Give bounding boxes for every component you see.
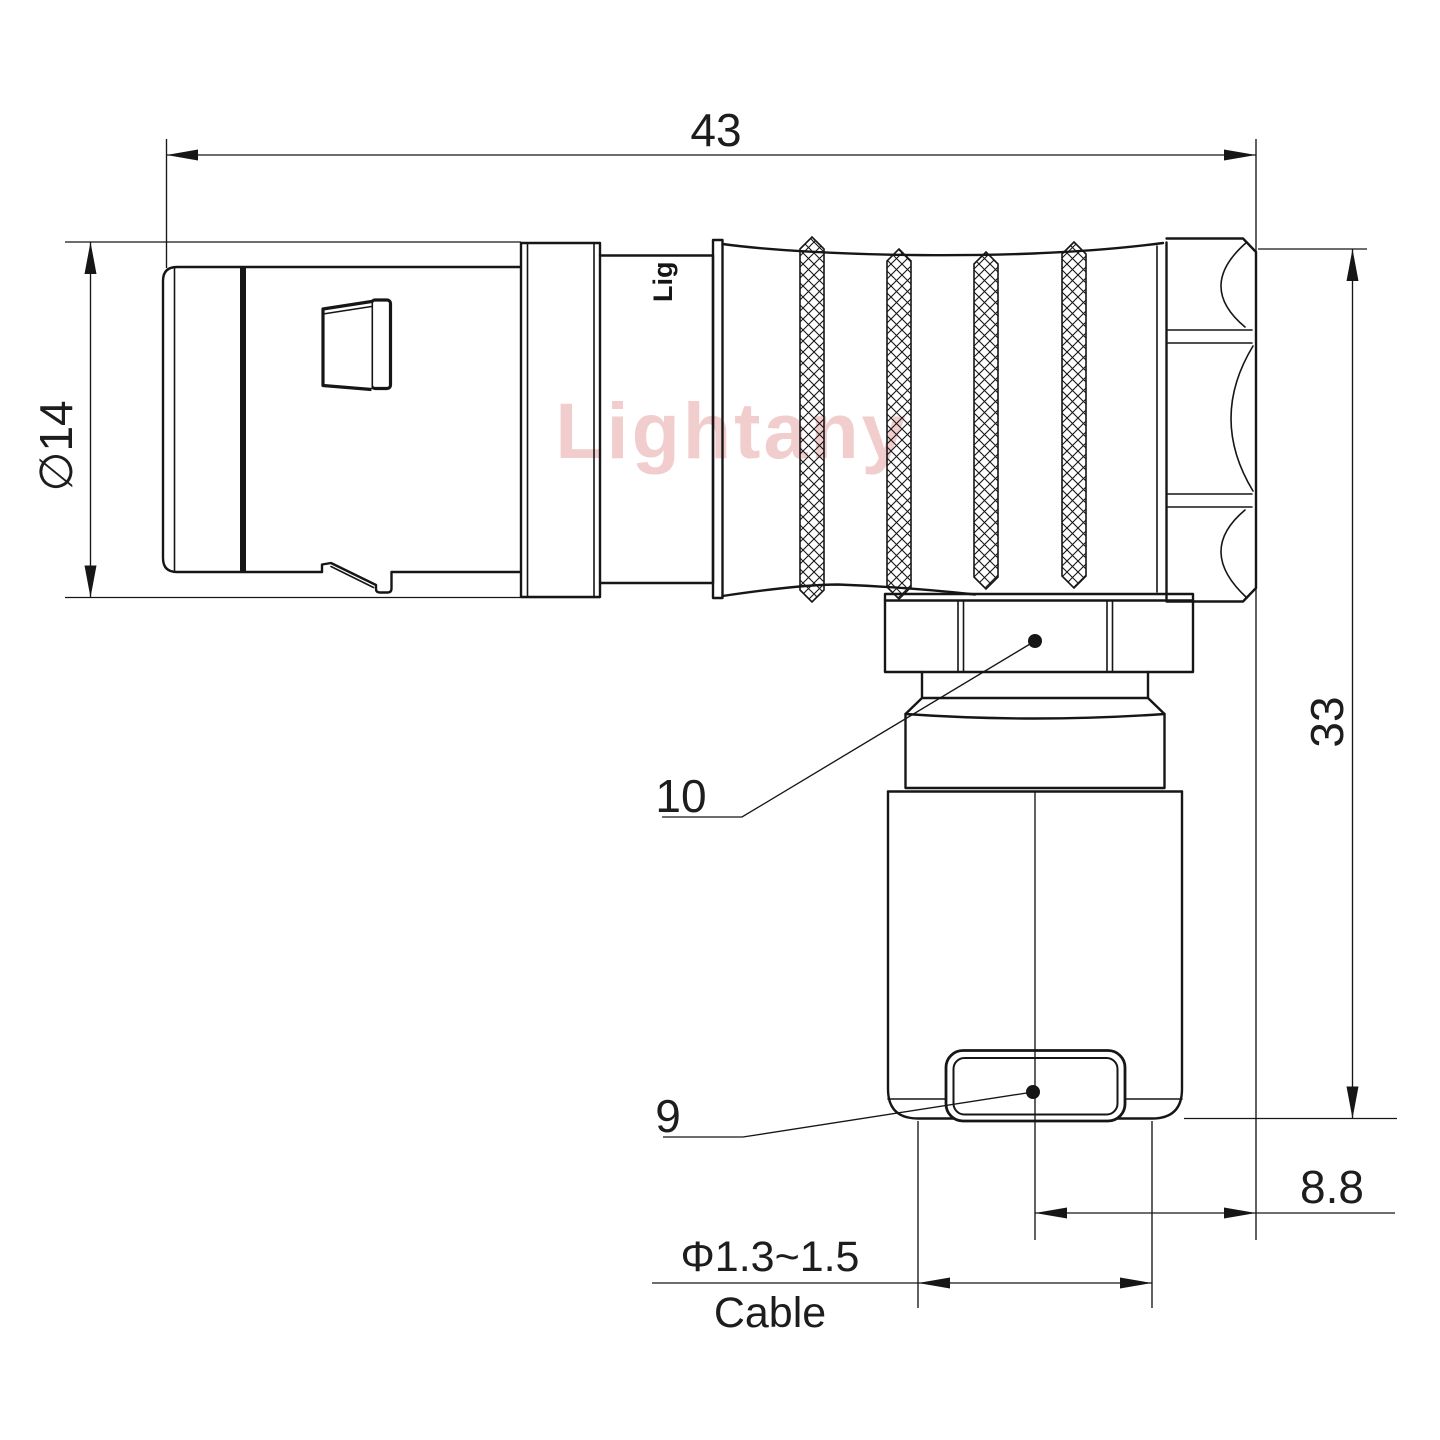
dim-cable-word-label: Cable bbox=[714, 1289, 826, 1337]
rear-cylinder bbox=[906, 714, 1165, 788]
connector-rear-body bbox=[885, 594, 1193, 1240]
latch-window bbox=[323, 300, 391, 390]
gland-nut bbox=[885, 594, 1193, 672]
watermark-text: Lightany bbox=[555, 386, 908, 475]
callout-coupling-nut: 10 bbox=[655, 634, 1042, 822]
body-engraving: Lig bbox=[648, 262, 678, 303]
strain-relief-body bbox=[888, 792, 1182, 1241]
dim-front-diameter-label: ∅14 bbox=[30, 400, 82, 491]
callout-10-dot bbox=[1028, 634, 1042, 648]
dimension-cable: Φ1.3~1.5 Cable bbox=[652, 1121, 1152, 1337]
dim-overall-height-label: 33 bbox=[1301, 696, 1353, 747]
rear-hex-nut bbox=[1167, 239, 1257, 602]
latch-tab bbox=[322, 563, 392, 593]
dim-cable-range-label: Φ1.3~1.5 bbox=[681, 1233, 860, 1281]
callout-10-label: 10 bbox=[655, 770, 706, 822]
technical-drawing: Lightany Lig bbox=[0, 0, 1440, 1440]
callout-9-label: 9 bbox=[655, 1090, 681, 1142]
dimension-front-diameter: ∅14 bbox=[30, 242, 600, 598]
dim-overall-length-label: 43 bbox=[690, 104, 741, 156]
drawing-canvas: Lightany Lig bbox=[0, 0, 1440, 1440]
dimension-rear-offset: 8.8 bbox=[1035, 1161, 1395, 1219]
dim-rear-offset-label: 8.8 bbox=[1300, 1161, 1364, 1213]
dimension-overall-height: 33 bbox=[1184, 249, 1397, 1119]
callout-9-dot bbox=[1026, 1085, 1040, 1099]
